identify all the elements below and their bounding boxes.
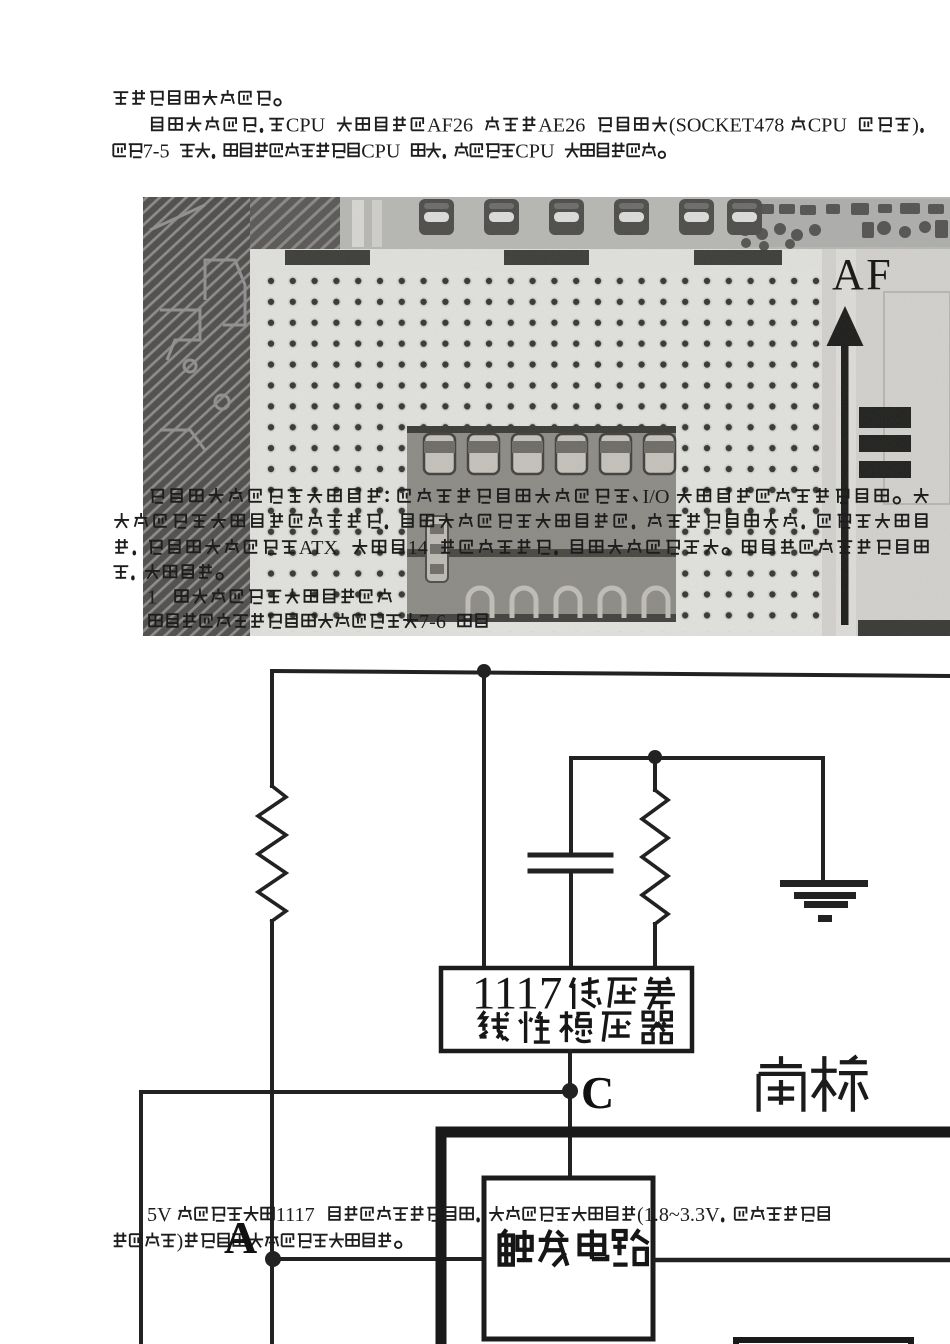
svg-text:): ): [177, 1230, 184, 1252]
svg-text:CPU: CPU: [515, 140, 555, 162]
svg-text:CPU: CPU: [286, 114, 326, 136]
svg-text:5V: 5V: [147, 1204, 172, 1226]
svg-text:1117: 1117: [276, 1204, 315, 1226]
svg-text:AF26: AF26: [427, 114, 473, 136]
svg-text:C: C: [581, 1067, 614, 1118]
svg-text:ATX: ATX: [299, 537, 339, 559]
svg-text:A: A: [224, 1212, 257, 1263]
svg-text:I/O: I/O: [643, 486, 670, 508]
svg-text:1.8~3.3V: 1.8~3.3V: [644, 1204, 720, 1226]
svg-text:7-5: 7-5: [143, 140, 170, 162]
svg-text:7-6: 7-6: [419, 611, 446, 633]
svg-text:CPU: CPU: [361, 140, 401, 162]
svg-text:AE26: AE26: [538, 114, 585, 136]
svg-text:14: 14: [408, 537, 428, 559]
svg-text:): ): [912, 114, 919, 136]
svg-text:CPU: CPU: [808, 114, 848, 136]
svg-text:1: 1: [147, 586, 157, 608]
svg-text:1117: 1117: [472, 968, 562, 1020]
svg-text:SOCKET478: SOCKET478: [676, 114, 785, 136]
